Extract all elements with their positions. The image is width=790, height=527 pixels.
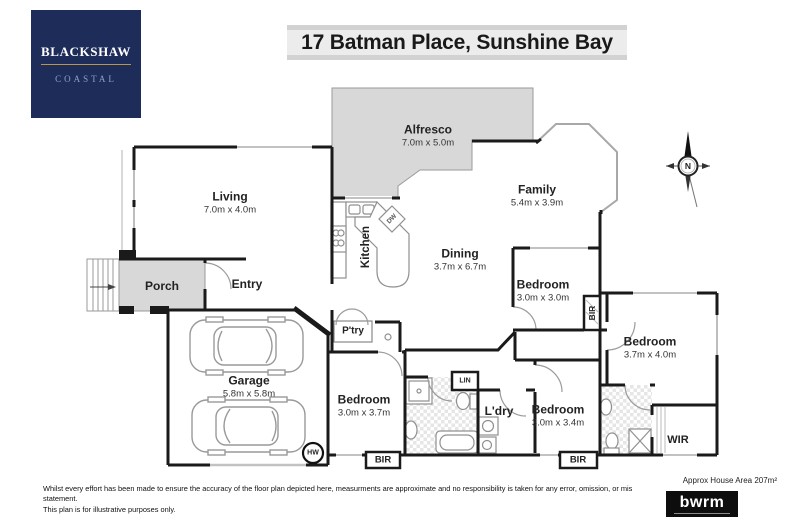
disclaimer-line-1: Whilst every effort has been made to ens… [43,484,668,505]
hot-water-unit [303,443,323,463]
disclaimer-line-2: This plan is for illustrative purposes o… [43,505,668,515]
house-area-note: Approx House Area 207m² [683,476,777,485]
floor-plan-drawing [0,0,790,527]
disclaimer-text: Whilst every effort has been made to ens… [43,484,668,515]
bay-window [538,124,617,212]
north-compass-icon [666,131,710,207]
marketing-logo-word: bwrm [680,495,725,511]
car-icon [190,317,303,375]
marketing-logo-tagline [674,513,730,514]
floor-plan-page: BLACKSHAW COASTAL 17 Batman Place, Sunsh… [0,0,790,527]
marketing-logo: bwrm [666,491,738,517]
car-icon [192,397,305,455]
outdoor-areas [87,88,533,311]
